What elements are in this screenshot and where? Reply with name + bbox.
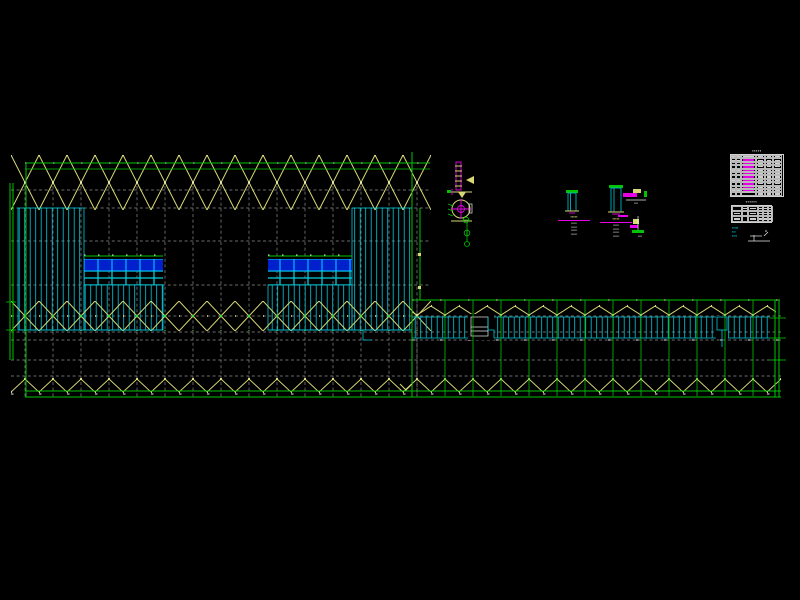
table-cell	[773, 192, 782, 195]
text-entry	[775, 187, 780, 188]
text-entry	[732, 190, 734, 191]
text-entry	[775, 160, 780, 161]
eave-zigzag-band	[11, 378, 781, 397]
text-entry	[758, 180, 763, 181]
text-entry	[775, 166, 780, 167]
text-entry	[769, 208, 771, 209]
text-entry	[775, 193, 780, 194]
text-entry	[758, 183, 763, 184]
text-entry	[750, 208, 756, 209]
text-entry	[759, 213, 761, 214]
text-entry	[767, 190, 772, 191]
text-entry	[775, 176, 780, 177]
text-entry	[734, 213, 740, 214]
section-detail-1-figure	[565, 190, 579, 213]
text-entry	[732, 170, 734, 171]
text-entry	[767, 160, 772, 161]
table-cell	[765, 192, 773, 195]
text-entry	[767, 193, 772, 194]
text-entry	[734, 218, 740, 219]
misc-detail-2-label: ▪▪▪▪	[628, 235, 652, 238]
text-entry	[737, 180, 739, 181]
text-entry	[737, 170, 739, 171]
text-entry	[767, 170, 772, 171]
text-entry	[767, 156, 772, 157]
note-line: ▪▪▪▪	[732, 234, 738, 238]
table-cell	[732, 216, 742, 221]
text-entry	[732, 156, 734, 157]
table-cell	[741, 192, 756, 195]
misc-detail-1-label: ▪▪▪▪	[624, 202, 648, 205]
text-entry	[775, 170, 780, 171]
material-table: ▪▪▪▪▪	[730, 148, 784, 197]
section-detail-2-figure	[608, 185, 624, 214]
text-entry	[767, 176, 772, 177]
text-entry	[737, 190, 739, 191]
text-entry	[775, 173, 780, 174]
table-cell	[768, 216, 773, 221]
text-entry	[732, 160, 734, 161]
text-entry	[743, 156, 753, 157]
summary-table-title: ▪▪▪▪▪▪	[731, 199, 772, 204]
table-cell	[748, 216, 758, 221]
text-entry	[743, 208, 746, 209]
mini-detail-figure	[748, 230, 770, 241]
section-detail-1-notes: ▪▪▪▪▪ ▪▪▪▪▪▪▪▪▪▪▪▪▪▪▪▪▪▪▪▪▪▪▪▪	[556, 215, 592, 237]
text-entry	[764, 218, 766, 219]
text-entry	[758, 176, 763, 177]
text-entry	[759, 208, 761, 209]
text-entry	[758, 193, 763, 194]
text-entry	[775, 163, 780, 164]
text-entry	[775, 156, 780, 157]
table-cell	[756, 192, 765, 195]
text-entry	[775, 190, 780, 191]
roof-x-bracing-band	[11, 155, 431, 210]
text-entry	[758, 160, 763, 161]
text-entry	[767, 180, 772, 181]
text-entry	[764, 213, 766, 214]
structural-plan-drawing	[0, 0, 800, 600]
summary-table: ▪▪▪▪▪▪	[731, 199, 772, 223]
text-entry	[758, 163, 763, 164]
section-note-line: ▪▪▪▪▪▪	[556, 233, 592, 237]
text-entry	[769, 213, 771, 214]
text-entry	[767, 187, 772, 188]
text-entry	[732, 180, 734, 181]
material-table-grid	[730, 154, 784, 197]
text-entry	[767, 163, 772, 164]
column-base-detail	[447, 162, 474, 247]
section-detail-1-title: ▪▪▪▪▪	[556, 215, 592, 220]
text-entry	[767, 166, 772, 167]
text-entry	[764, 208, 766, 209]
text-entry	[750, 213, 756, 214]
text-entry	[750, 218, 756, 219]
summary-table-grid	[731, 205, 772, 223]
text-entry	[737, 160, 739, 161]
text-entry	[759, 218, 761, 219]
text-entry	[758, 190, 763, 191]
text-entry	[737, 156, 739, 157]
text-entry	[769, 218, 771, 219]
text-entry	[758, 173, 763, 174]
cyan-note-block: ▪▪▪▪▪▪▪▪▪▪▪▪	[732, 226, 738, 239]
misc-detail-2-side-label: ▪▪	[610, 213, 620, 216]
text-entry	[767, 173, 772, 174]
section-detail-2-title: ▪▪▪▪▪	[598, 217, 634, 222]
text-entry	[758, 170, 763, 171]
text-entry	[775, 183, 780, 184]
cad-canvas: ▪▪▪▪▪ ▪▪▪▪▪▪ ▪▪▪▪▪▪▪▪▪▪▪▪ ▪▪▪▪▪ ▪▪▪▪▪▪▪▪…	[0, 0, 800, 600]
material-table-title: ▪▪▪▪▪	[730, 148, 784, 153]
misc-detail-1-figure	[623, 189, 647, 200]
text-entry	[758, 187, 763, 188]
text-entry	[758, 166, 763, 167]
text-entry	[767, 183, 772, 184]
text-entry	[758, 156, 763, 157]
text-entry	[775, 180, 780, 181]
